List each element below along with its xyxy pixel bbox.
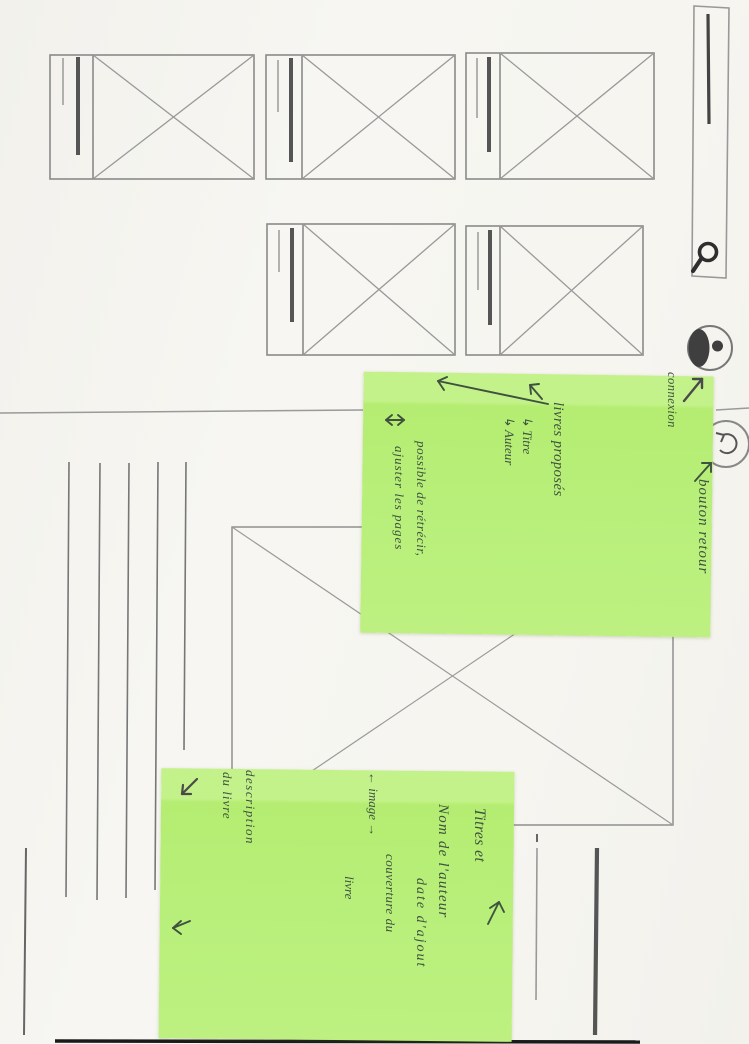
scanned-wireframe-page: connexion bouton retour livres proposés … (0, 0, 749, 1044)
description-arrow-icon (182, 779, 197, 794)
resize-arrow-icon (386, 415, 404, 425)
livres-arrow-icon (530, 384, 542, 399)
retour-arrow-icon (695, 463, 711, 481)
annotation-arrows (0, 0, 749, 1044)
titres-arrow-icon (488, 902, 504, 924)
connexion-arrow-icon (684, 379, 702, 401)
date-arrow-icon (173, 921, 190, 934)
